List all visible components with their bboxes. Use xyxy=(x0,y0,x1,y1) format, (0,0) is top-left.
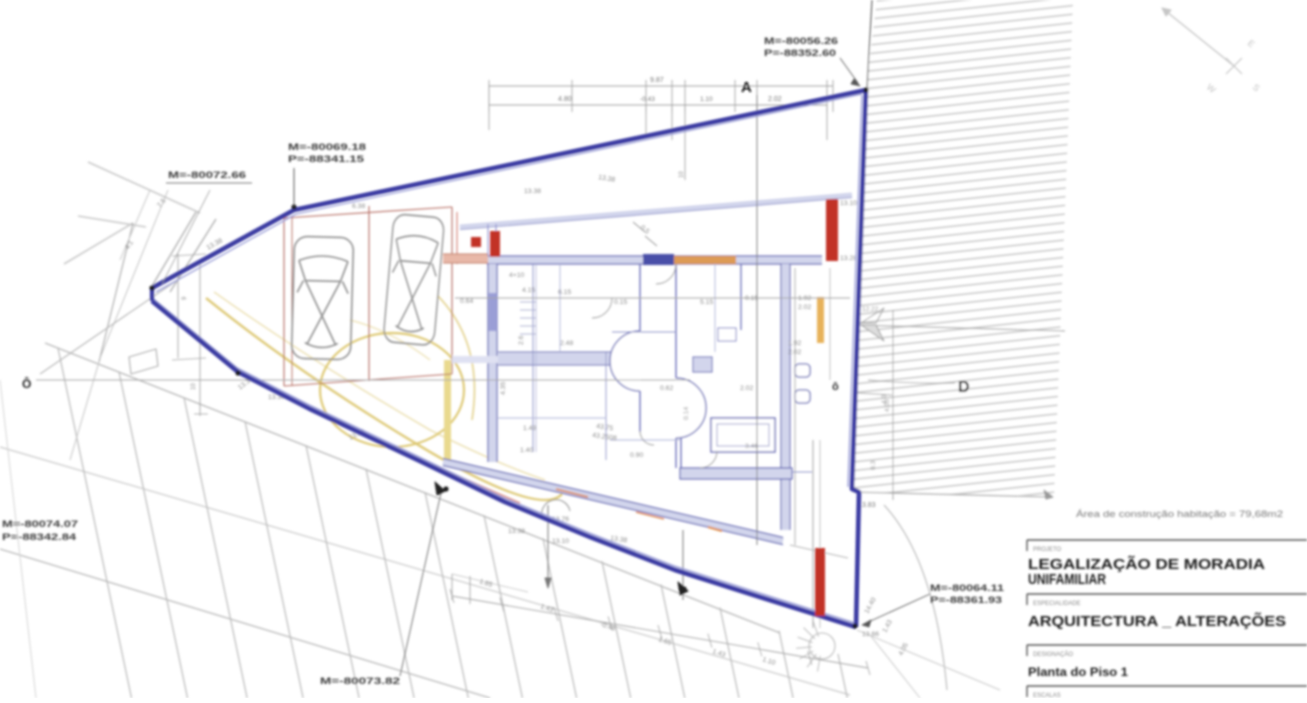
svg-text:0.64: 0.64 xyxy=(460,298,473,305)
svg-text:13.10: 13.10 xyxy=(552,538,569,545)
svg-text:0.14: 0.14 xyxy=(683,407,690,420)
svg-text:0.90: 0.90 xyxy=(630,452,643,459)
svg-text:2.02: 2.02 xyxy=(768,96,782,103)
svg-text:0.3: 0.3 xyxy=(870,460,877,470)
svg-text:D: D xyxy=(958,379,970,396)
svg-text:0.15: 0.15 xyxy=(614,299,627,306)
svg-text:P=-88361.93: P=-88361.93 xyxy=(930,595,1002,605)
svg-text:6.38: 6.38 xyxy=(352,203,365,210)
svg-text:M=-80074.07: M=-80074.07 xyxy=(2,519,78,530)
svg-text:M=-80064.11: M=-80064.11 xyxy=(930,583,1004,593)
svg-text:2.02: 2.02 xyxy=(740,385,753,392)
svg-text:ô: ô xyxy=(832,381,839,393)
svg-text:4.35: 4.35 xyxy=(500,382,507,395)
svg-text:4.15: 4.15 xyxy=(522,287,535,294)
svg-text:ESPECIALIDADE: ESPECIALIDADE xyxy=(1033,601,1081,607)
svg-text:Ô: Ô xyxy=(22,376,31,391)
svg-text:M=-80069.18: M=-80069.18 xyxy=(288,142,366,153)
svg-text:Planta do Piso 1: Planta do Piso 1 xyxy=(1028,665,1128,679)
svg-text:2.02: 2.02 xyxy=(788,349,801,356)
svg-text:2.02: 2.02 xyxy=(798,304,811,311)
svg-text:4+10: 4+10 xyxy=(509,272,525,279)
svg-text:6.15: 6.15 xyxy=(558,289,571,296)
svg-text:2.48: 2.48 xyxy=(560,340,573,347)
svg-text:UNIFAMILIAR: UNIFAMILIAR xyxy=(1028,572,1106,588)
svg-text:1.40: 1.40 xyxy=(520,447,533,454)
svg-text:1.92: 1.92 xyxy=(788,340,801,347)
svg-text:M=-80073.82: M=-80073.82 xyxy=(320,676,400,687)
svg-text:0.62: 0.62 xyxy=(660,385,673,392)
svg-text:M=-80056.26: M=-80056.26 xyxy=(764,36,838,46)
svg-text:PROJETO: PROJETO xyxy=(1033,547,1062,553)
svg-text:A: A xyxy=(741,79,752,96)
svg-text:Área de construção habitação: Área de construção habitação = 79,68m2 xyxy=(1076,509,1283,519)
svg-text:2.6: 2.6 xyxy=(518,335,525,345)
svg-text:M=-80072.66: M=-80072.66 xyxy=(168,170,246,181)
svg-text:P=-88341.15: P=-88341.15 xyxy=(288,154,365,165)
svg-text:ARQUITECTURA _ ALTERAÇÕES: ARQUITECTURA _ ALTERAÇÕES xyxy=(1028,612,1286,630)
svg-text:1.10: 1.10 xyxy=(700,96,713,103)
svg-text:10: 10 xyxy=(679,171,685,178)
svg-text:5.15: 5.15 xyxy=(700,299,713,306)
svg-text:ESCALAS: ESCALAS xyxy=(1033,693,1061,698)
svg-text:P=-88352.60: P=-88352.60 xyxy=(764,48,836,58)
svg-text:13.38: 13.38 xyxy=(508,528,525,535)
svg-text:9.87: 9.87 xyxy=(650,77,664,84)
svg-text:4.80: 4.80 xyxy=(558,96,572,103)
svg-text:0.15: 0.15 xyxy=(745,295,758,302)
svg-text:13.10: 13.10 xyxy=(840,200,857,207)
svg-text:3.46: 3.46 xyxy=(745,443,758,450)
svg-text:1.49: 1.49 xyxy=(523,425,536,432)
svg-text:DESIGNAÇÃO: DESIGNAÇÃO xyxy=(1033,651,1073,658)
svg-text:13.38: 13.38 xyxy=(524,188,541,195)
svg-text:LEGALIZAÇÃO DE MORADIA: LEGALIZAÇÃO DE MORADIA xyxy=(1028,555,1266,573)
svg-text:13.28: 13.28 xyxy=(840,255,857,262)
svg-text:12.22: 12.22 xyxy=(862,306,879,313)
svg-text:10: 10 xyxy=(191,383,197,390)
svg-text:P=-88342.84: P=-88342.84 xyxy=(2,532,77,543)
svg-text:13.66: 13.66 xyxy=(862,631,879,638)
svg-text:4.0: 4.0 xyxy=(881,394,888,404)
svg-text:1.92: 1.92 xyxy=(798,295,811,302)
svg-text:-0.43: -0.43 xyxy=(640,96,655,103)
